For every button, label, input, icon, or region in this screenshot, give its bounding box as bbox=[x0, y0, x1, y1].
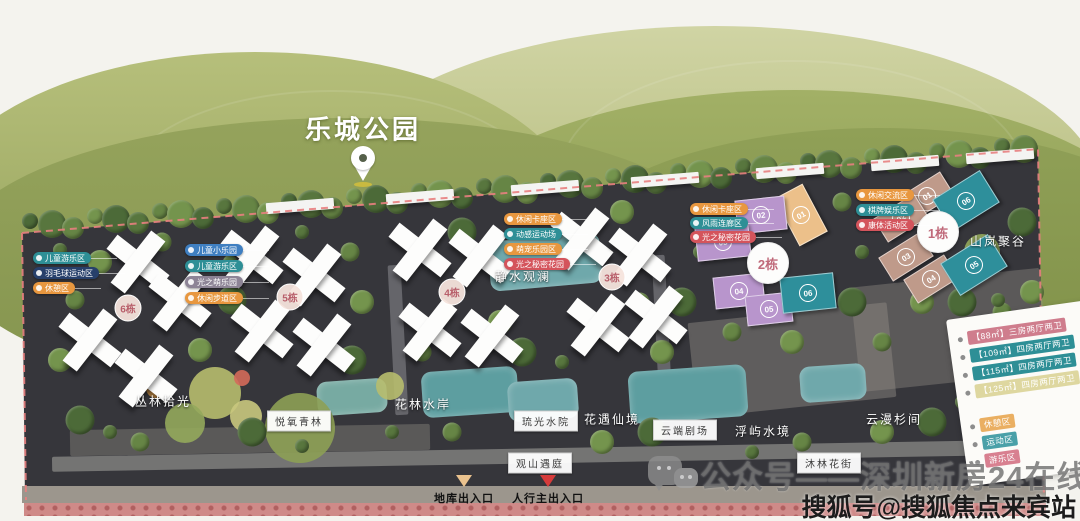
amenity-tag-icon bbox=[859, 207, 865, 213]
leader-line bbox=[914, 210, 940, 211]
amenity-tag: 休闲交流区 bbox=[856, 189, 914, 201]
legend-bullet-icon bbox=[957, 336, 963, 342]
amenity-tag-icon bbox=[188, 247, 194, 253]
leader-line bbox=[914, 225, 940, 226]
area-label: 花遇仙境 bbox=[584, 411, 640, 428]
legend-bullet-icon bbox=[960, 354, 966, 360]
legend-bullet-icon bbox=[970, 424, 976, 430]
legend-amenity-type: 运动区 bbox=[982, 431, 1019, 450]
entrance-triangle-icon bbox=[540, 475, 556, 487]
leader-line bbox=[99, 273, 125, 274]
amenity-tag-icon bbox=[507, 216, 513, 222]
amenity-tag: 儿童游乐区 bbox=[33, 252, 91, 264]
amenity-tag-icon bbox=[859, 222, 865, 228]
amenity-tag: 休憩区 bbox=[33, 282, 75, 294]
amenity-tag: 休闲卡座区 bbox=[690, 203, 748, 215]
leader-line bbox=[748, 223, 774, 224]
amenity-tag-icon bbox=[188, 295, 194, 301]
amenity-tag-icon bbox=[693, 206, 699, 212]
entrance-label: 地库出入口 bbox=[434, 490, 494, 506]
amenity-tag: 棋牌娱乐区 bbox=[856, 204, 914, 216]
area-label: 观山遇庭 bbox=[508, 453, 572, 474]
amenity-tag-icon bbox=[36, 255, 42, 261]
amenity-tag-icon bbox=[36, 285, 42, 291]
legend-amenity-type: 休憩区 bbox=[979, 413, 1016, 432]
entrance-marker: 地库出入口 bbox=[434, 475, 494, 506]
legend-bullet-icon bbox=[965, 390, 971, 396]
sohu-watermark-text: 搜狐号@搜狐焦点来宾站 bbox=[802, 488, 1076, 521]
amenity-tag-icon bbox=[36, 270, 42, 276]
area-label: 花林水岸 bbox=[395, 396, 451, 413]
area-label: 云漫杉间 bbox=[866, 411, 922, 428]
amenity-tag: 风雨连廊区 bbox=[690, 217, 748, 229]
entrance-triangle-icon bbox=[456, 475, 472, 487]
amenity-tag: 康体活动区 bbox=[856, 219, 914, 231]
area-label: 浮屿水境 bbox=[735, 423, 791, 440]
leader-line bbox=[243, 250, 269, 251]
legend-bullet-icon bbox=[962, 372, 968, 378]
leader-line bbox=[562, 219, 588, 220]
entrance-marker: 人行主出入口 bbox=[512, 475, 584, 506]
leader-line bbox=[243, 282, 269, 283]
amenity-tag: 休闲卡座区 bbox=[504, 213, 562, 225]
site-plan-canvas: 乐城公园 0102030405062栋0102030405061栋6栋5栋4栋3… bbox=[0, 0, 1080, 521]
leader-line bbox=[570, 264, 596, 265]
area-label: 丛林拾光 bbox=[135, 393, 191, 410]
amenity-tag-icon bbox=[859, 192, 865, 198]
entrance-label: 人行主出入口 bbox=[512, 490, 584, 506]
leader-line bbox=[756, 237, 782, 238]
amenity-tag-icon bbox=[693, 220, 699, 226]
area-label: 静水观澜 bbox=[495, 268, 551, 285]
amenity-tag: 光之萌乐园 bbox=[185, 276, 243, 288]
leader-line bbox=[91, 258, 117, 259]
amenity-tag: 动感运动场 bbox=[504, 228, 562, 240]
legend-bullet-icon bbox=[972, 441, 978, 447]
leader-line bbox=[562, 234, 588, 235]
amenity-tag: 光之秘密花园 bbox=[690, 231, 756, 243]
leader-line bbox=[562, 249, 588, 250]
area-label: 悦氧青林 bbox=[267, 411, 331, 432]
amenity-tag: 羽毛球运动区 bbox=[33, 267, 99, 279]
area-label: 山岚聚谷 bbox=[970, 233, 1026, 250]
amenity-tag-icon bbox=[188, 279, 194, 285]
amenity-tag-icon bbox=[507, 231, 513, 237]
amenity-tag-icon bbox=[693, 234, 699, 240]
leader-line bbox=[748, 209, 774, 210]
leader-line bbox=[243, 298, 269, 299]
area-label: 琉光水院 bbox=[514, 411, 578, 432]
amenity-tag-icon bbox=[507, 261, 513, 267]
wechat-chat-bubbles-icon bbox=[648, 456, 706, 500]
amenity-tag-icon bbox=[507, 246, 513, 252]
amenity-tag: 光之秘密花园 bbox=[504, 258, 570, 270]
leader-line bbox=[914, 195, 940, 196]
leader-line bbox=[75, 288, 101, 289]
leader-line bbox=[243, 266, 269, 267]
amenity-tag: 儿童游乐区 bbox=[185, 260, 243, 272]
amenity-tag: 儿童小乐园 bbox=[185, 244, 243, 256]
amenity-tag-icon bbox=[188, 263, 194, 269]
area-label: 云端剧场 bbox=[653, 420, 717, 441]
amenity-tag: 萌宠乐园区 bbox=[504, 243, 562, 255]
amenity-tag: 休闲步道区 bbox=[185, 292, 243, 304]
